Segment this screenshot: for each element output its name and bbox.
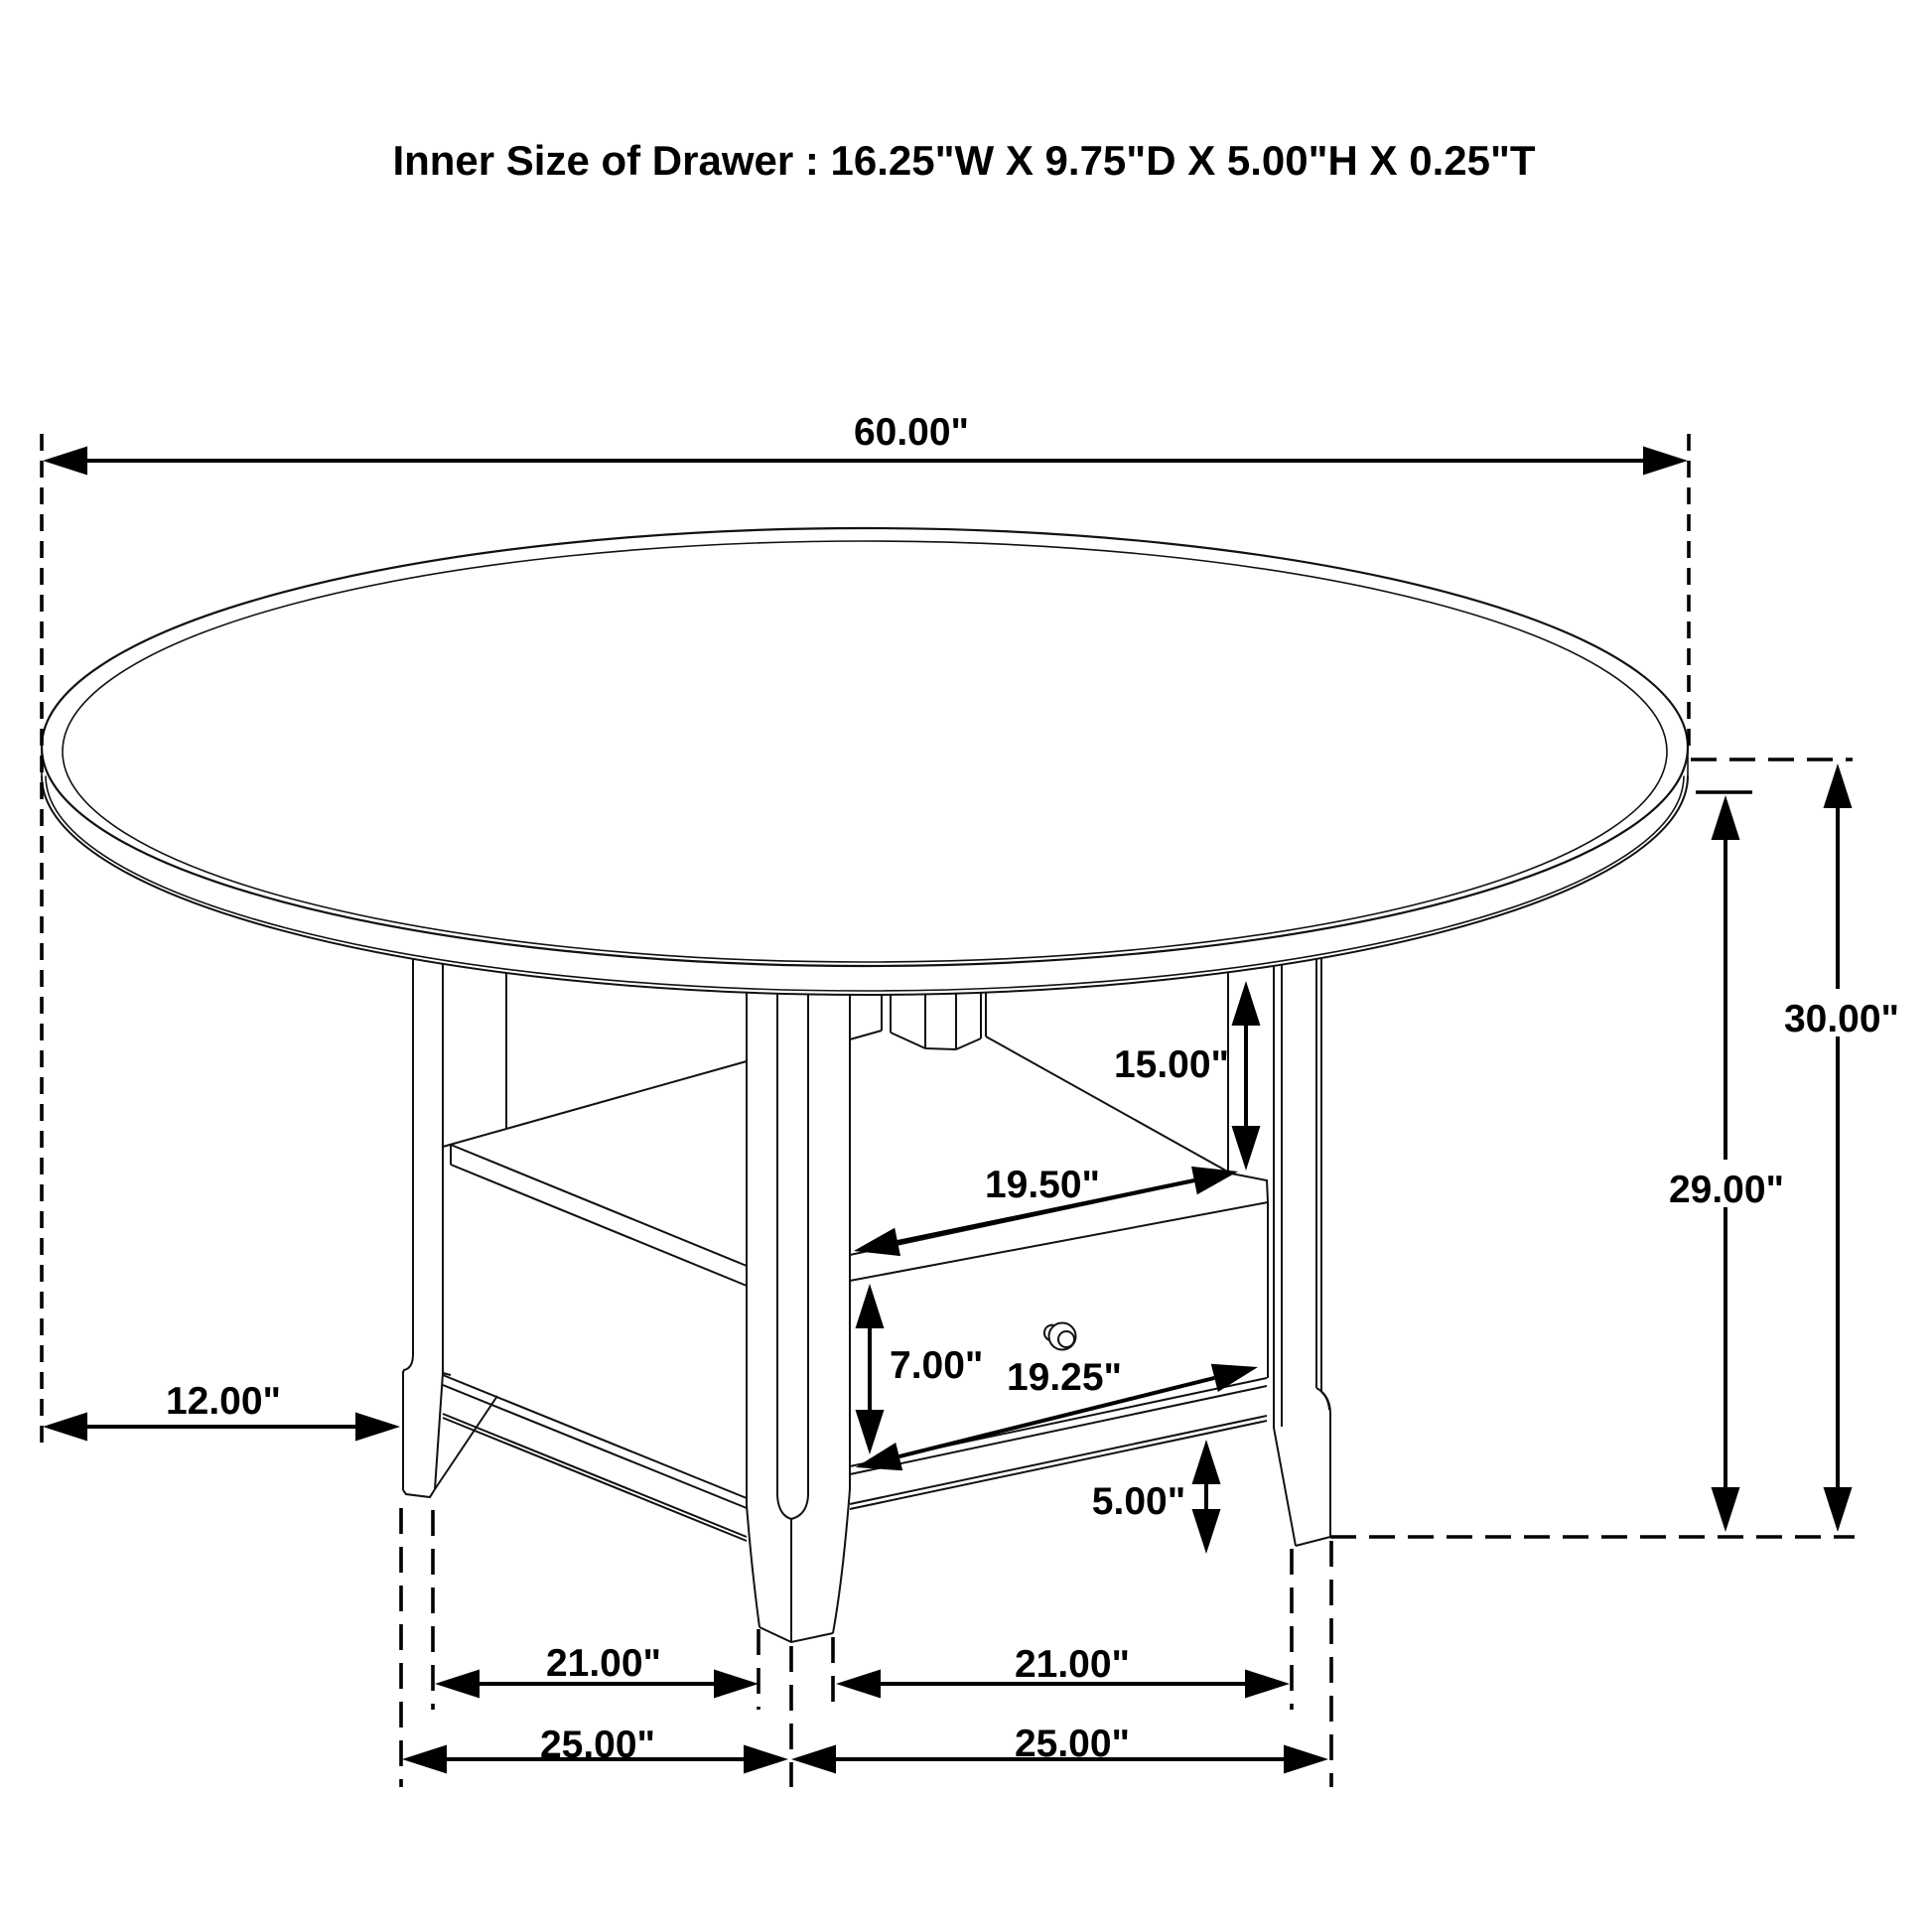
svg-text:12.00": 12.00" [166,1380,281,1423]
svg-text:19.50": 19.50" [985,1164,1100,1206]
svg-text:29.00": 29.00" [1669,1169,1784,1211]
svg-text:19.25": 19.25" [1007,1356,1122,1399]
svg-text:Inner Size of Drawer : 16.25"W: Inner Size of Drawer : 16.25"W X 9.75"D … [392,137,1535,184]
svg-text:21.00": 21.00" [1015,1643,1130,1686]
svg-text:25.00": 25.00" [1015,1723,1130,1765]
svg-text:21.00": 21.00" [546,1642,661,1685]
svg-text:25.00": 25.00" [540,1724,655,1766]
svg-text:60.00": 60.00" [854,411,969,454]
svg-text:30.00": 30.00" [1784,998,1899,1040]
svg-text:15.00": 15.00" [1114,1043,1229,1086]
svg-text:7.00": 7.00" [890,1344,983,1387]
svg-text:5.00": 5.00" [1092,1480,1185,1523]
